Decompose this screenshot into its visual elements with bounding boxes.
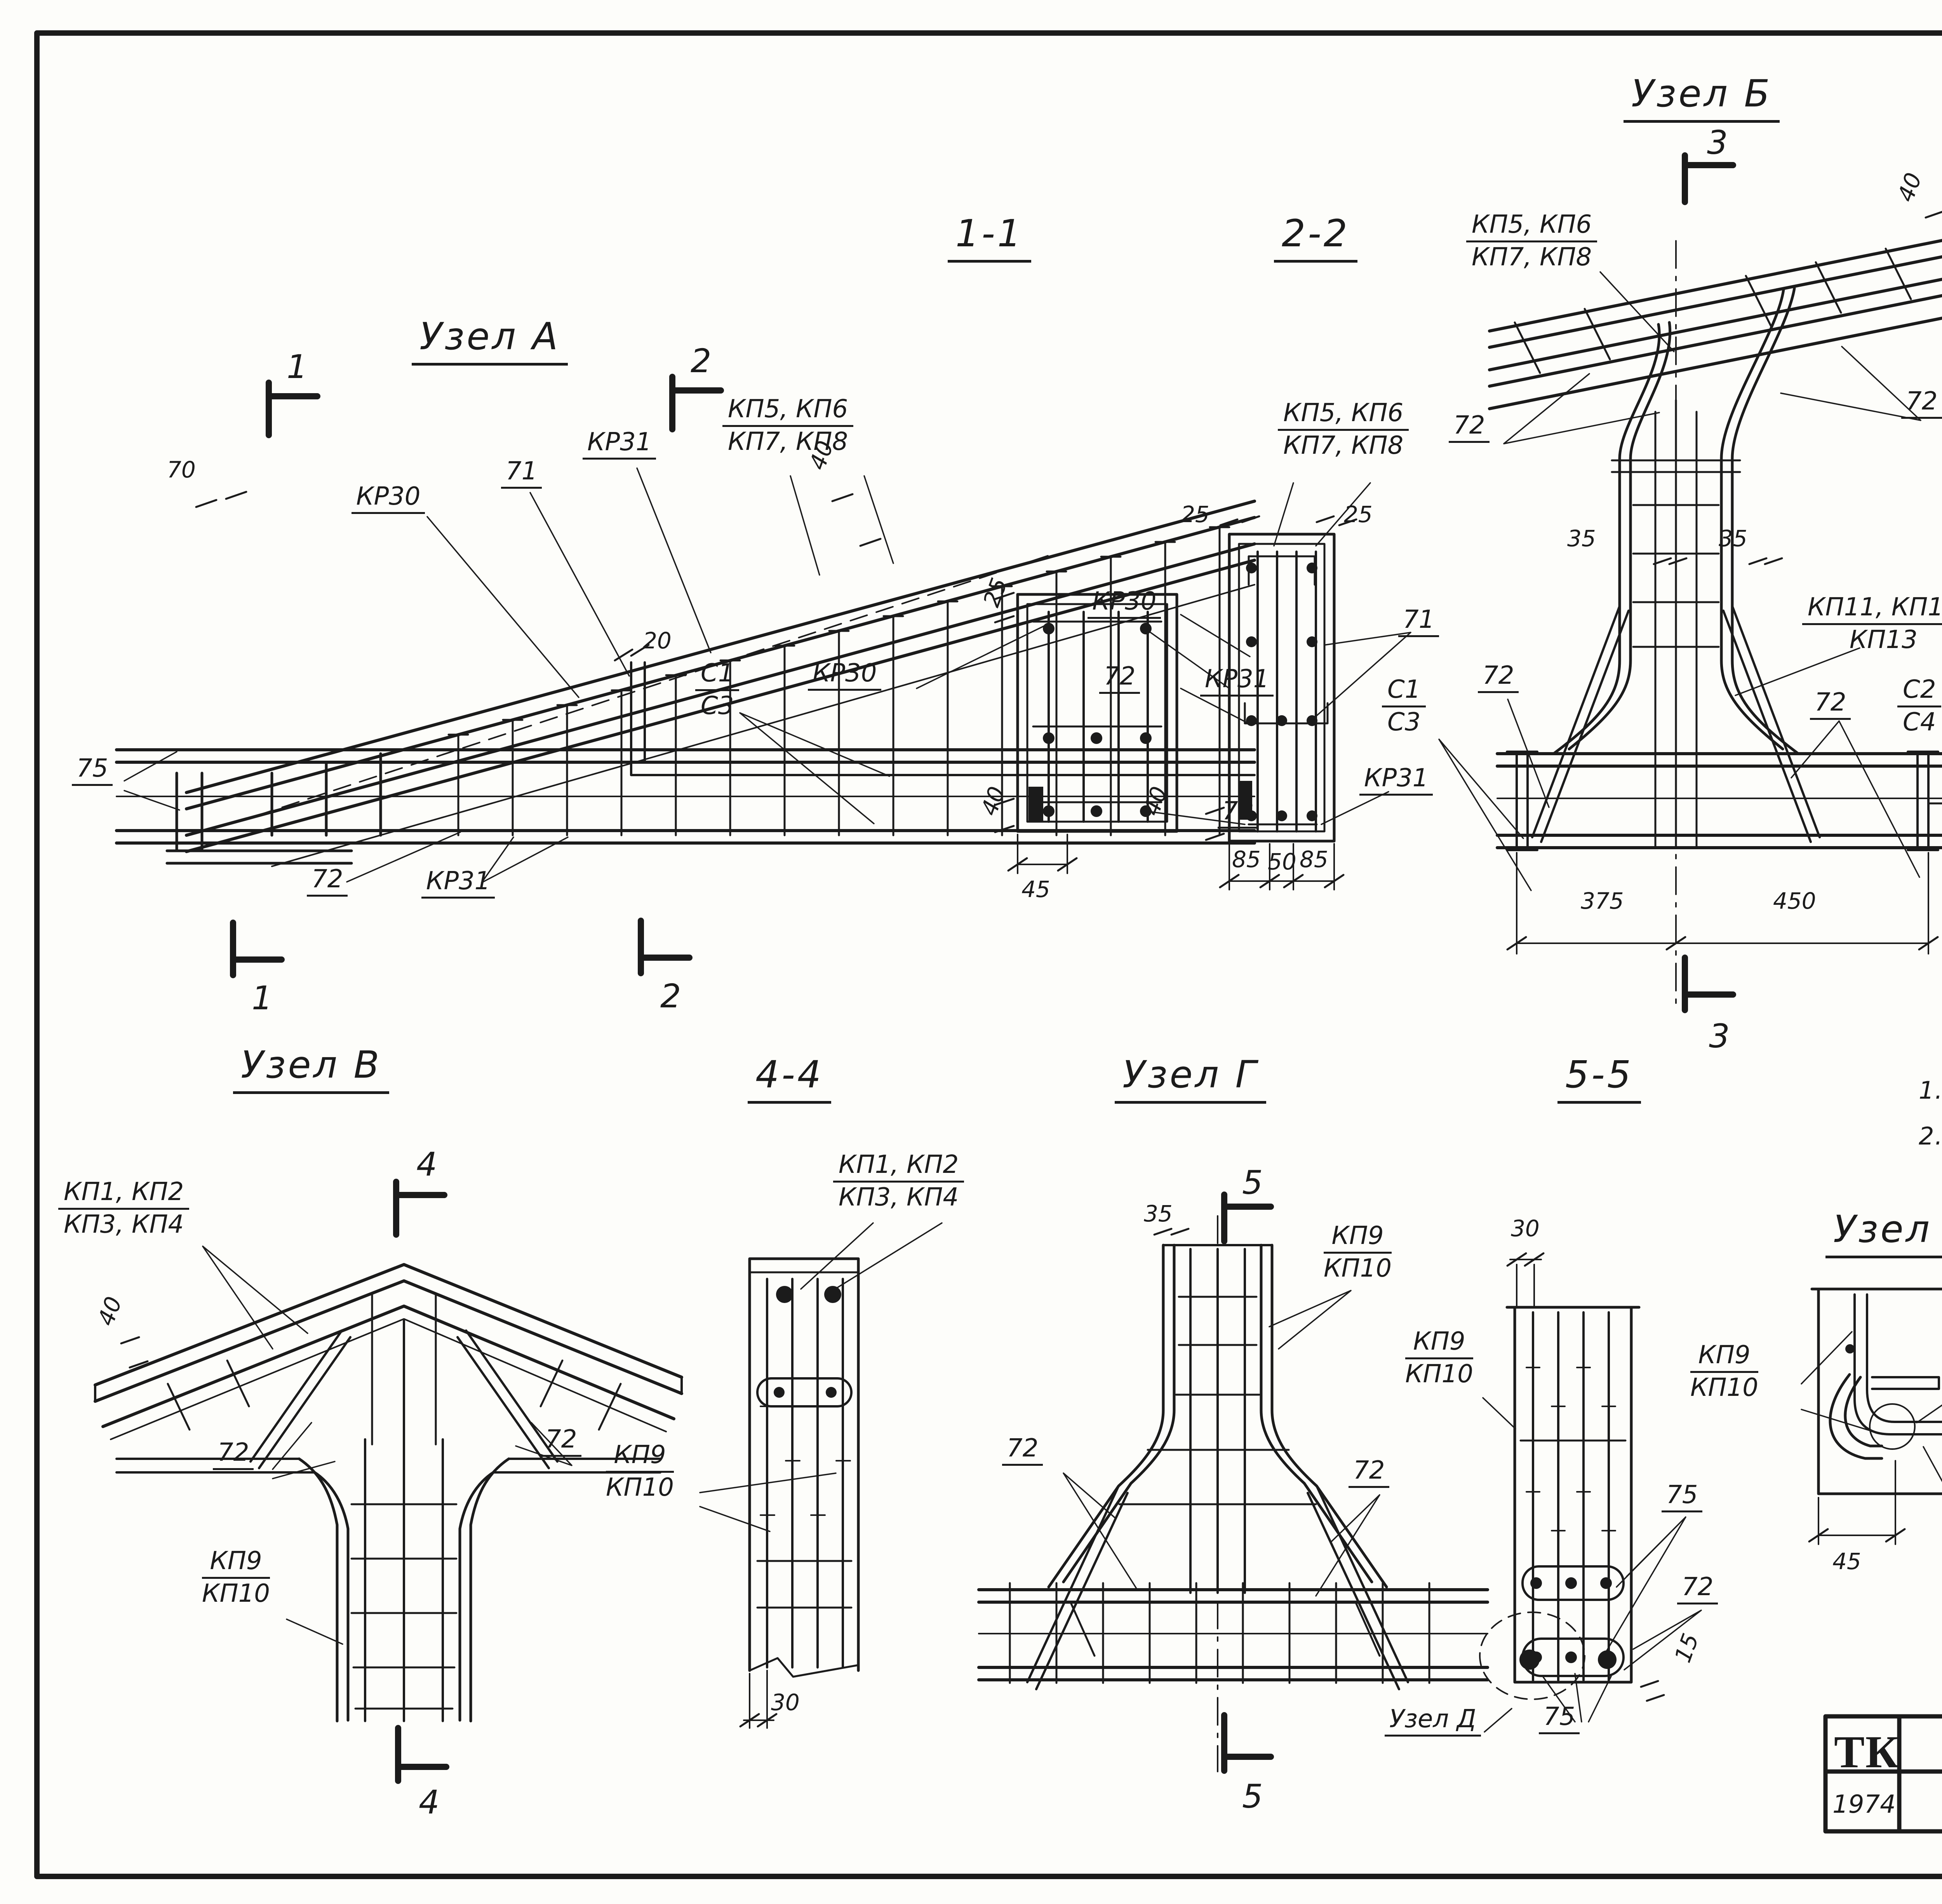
drawing-linework: [0, 0, 1942, 1904]
uzel-g-callout-72-left: 72: [1002, 1435, 1043, 1466]
section-2-2-dim-85-right: 85: [1300, 846, 1328, 873]
uzel-g-callout-kp9-10: КП9 КП10: [1324, 1223, 1392, 1282]
uzel-a-callout-kr31: КР31: [583, 429, 656, 460]
section-2-2-dim-25-right: 25: [1344, 501, 1373, 528]
uzel-a-dim-70: 70: [167, 456, 196, 483]
section-2-2-callout-kp5-6: КП5, КП6: [1278, 400, 1409, 431]
uzel-b-callout-kp11-13: КП11, КП12 КП13: [1802, 594, 1942, 653]
section-4-4-callout-kp1-2: КП1, КП2: [833, 1152, 964, 1183]
uzel-b-callout-c1: С1: [1382, 677, 1426, 707]
uzel-a-callout-kp5-6: КП5, КП6: [722, 396, 853, 427]
section-5-5-callout-kp10: КП10: [1405, 1359, 1473, 1387]
uzel-a-section-mark-2-bottom: 2: [660, 977, 681, 1015]
section-1-1-callout-72: 72: [1218, 798, 1258, 829]
title-block-year: 1974: [1832, 1790, 1896, 1819]
uzel-b-callout-kp5-8: КП5, КП6 КП7, КП8: [1466, 212, 1597, 270]
section-2-2-callout-kp7-8: КП7, КП8: [1278, 431, 1409, 459]
uzel-a-callout-c1: С1: [695, 660, 739, 691]
section-2-2-dim-50: 50: [1268, 848, 1296, 875]
section-5-5-callout-75: 75: [1662, 1482, 1702, 1512]
uzel-b-callout-72-left-bottom: 72: [1478, 663, 1519, 693]
section-5-5-callout-72: 72: [1677, 1574, 1718, 1604]
section-1-1-callout-kr31: КР31: [1200, 666, 1274, 697]
uzel-a-dim-20: 20: [643, 627, 672, 654]
section-4-4-title: 4-4: [748, 1053, 831, 1104]
uzel-b-dim-35-left: 35: [1567, 525, 1596, 552]
uzel-b-callout-kp11-12: КП11, КП12: [1802, 594, 1942, 625]
uzel-b-dim-35-right: 35: [1719, 525, 1747, 552]
uzel-g-section-mark-5-bottom: 5: [1242, 1777, 1263, 1815]
section-5-5-callout-kp9-10: КП9 КП10: [1405, 1329, 1473, 1387]
uzel-b-callout-72-left-top: 72: [1449, 413, 1490, 443]
uzel-b-section-mark-3-bottom: 3: [1709, 1017, 1730, 1055]
uzel-d-callout-kp10: КП10: [1690, 1373, 1758, 1401]
uzel-b-callout-c2: С2: [1897, 677, 1941, 707]
section-2-2-title: 2-2: [1274, 212, 1357, 263]
uzel-a-section-mark-1-bottom: 1: [252, 979, 272, 1017]
uzel-g-callout-75: 75: [1539, 1704, 1580, 1734]
view-4-4-lines: [700, 1223, 942, 1728]
uzel-d-callout-kp9: КП9: [1690, 1342, 1758, 1373]
uzel-a-callout-c3: С3: [695, 691, 739, 719]
section-4-4-callout-kp3-4: КП3, КП4: [833, 1183, 964, 1211]
section-5-5-callout-kp9: КП9: [1405, 1329, 1473, 1359]
uzel-b-dim-375: 375: [1581, 888, 1624, 914]
uzel-d-callout-kp9-10: КП9 КП10: [1690, 1342, 1758, 1401]
view-uzel-d-lines: [1801, 1289, 1942, 1548]
uzel-g-callout-72-right: 72: [1349, 1458, 1389, 1488]
view-uzel-v-lines: [95, 1182, 682, 1781]
section-2-2-callout-kr30: КР30: [1088, 589, 1161, 619]
section-2-2-callout-kr31: КР31: [1359, 765, 1433, 796]
company-logo-tk: ТК: [1834, 1726, 1899, 1779]
section-5-5-title: 5-5: [1557, 1053, 1641, 1104]
uzel-a-callout-c1-c3: С1 С3: [695, 660, 739, 719]
uzel-g-title: Узел Г: [1115, 1053, 1266, 1104]
uzel-g-callout-kp9: КП9: [1324, 1223, 1392, 1254]
section-1-1-callout-kr30: КР30: [808, 660, 881, 691]
uzel-v-callout-kp1-2: КП1, КП2: [58, 1179, 189, 1210]
uzel-v-callout-kp1-4: КП1, КП2 КП3, КП4: [58, 1179, 189, 1238]
section-1-1-dim-45: 45: [1021, 876, 1050, 902]
section-4-4-dim-30: 30: [771, 1689, 800, 1716]
uzel-g-section-mark-5-top: 5: [1242, 1164, 1263, 1202]
uzel-d-reference-callout: Узел Д: [1385, 1706, 1481, 1737]
uzel-g-dim-35: 35: [1144, 1200, 1173, 1227]
uzel-b-callout-c1-c3: С1 С3: [1382, 677, 1426, 735]
section-4-4-callout-kp10: КП10: [606, 1473, 674, 1501]
section-2-2-callout-72: 72: [1099, 664, 1140, 694]
note-line-2: 2. Разбивка стержней в нижнем поясе: [1919, 1122, 1942, 1150]
uzel-b-callout-c4: С4: [1897, 707, 1941, 735]
uzel-b-callout-kp5-6: КП5, КП6: [1466, 212, 1597, 242]
section-1-1-title: 1-1: [948, 212, 1031, 263]
uzel-d-title: Узел Д: [1825, 1207, 1942, 1258]
uzel-a-callout-75: 75: [72, 756, 113, 786]
uzel-b-section-mark-3-top: 3: [1707, 124, 1728, 162]
uzel-v-callout-kp9: КП9: [202, 1548, 270, 1579]
uzel-g-callout-kp10: КП10: [1324, 1254, 1392, 1282]
uzel-a-title: Узел А: [412, 315, 568, 366]
uzel-b-callout-72-right-top: 72: [1901, 388, 1942, 419]
uzel-b-dim-450: 450: [1773, 888, 1816, 914]
uzel-v-section-mark-4-bottom: 4: [419, 1783, 439, 1821]
sheet-frame: [37, 33, 1942, 1876]
section-5-5-dim-30: 30: [1511, 1215, 1540, 1242]
section-4-4-callout-kp9-10: КП9 КП10: [606, 1442, 674, 1501]
note-line-1: 1. Арматурные чертежи даны на листах 23и…: [1919, 1076, 1942, 1104]
uzel-a-callout-72: 72: [307, 866, 348, 897]
uzel-a-callout-71: 71: [501, 458, 542, 489]
uzel-v-callout-72-right: 72: [541, 1427, 581, 1457]
section-4-4-callout-kp9: КП9: [606, 1442, 674, 1473]
uzel-a-section-mark-1-top: 1: [287, 348, 307, 386]
uzel-v-callout-kp9-10: КП9 КП10: [202, 1548, 270, 1607]
view-5-5-lines: [1480, 1253, 1701, 1701]
uzel-v-callout-kp3-4: КП3, КП4: [58, 1210, 189, 1238]
section-2-2-dim-25-left: 25: [1181, 501, 1209, 528]
uzel-b-title: Узел Б: [1624, 72, 1780, 123]
uzel-v-section-mark-4-top: 4: [416, 1145, 437, 1183]
uzel-a-callout-kr31-bottom: КР31: [421, 868, 495, 899]
section-2-2-dim-85-left: 85: [1232, 846, 1261, 873]
uzel-b-callout-kp13: КП13: [1802, 625, 1942, 653]
section-2-2-callout-71: 71: [1398, 607, 1439, 637]
uzel-b-callout-kp7-8: КП7, КП8: [1466, 242, 1597, 270]
drawing-sheet: 26 13221-01 26 1. Арматурные чертежи дан…: [0, 0, 1942, 1904]
uzel-b-callout-c3: С3: [1382, 707, 1426, 735]
section-2-2-callout-kp5-8: КП5, КП6 КП7, КП8: [1278, 400, 1409, 459]
uzel-b-callout-c2-c4: С2 С4: [1897, 677, 1941, 735]
uzel-v-callout-72-left: 72: [213, 1440, 254, 1470]
uzel-v-callout-kp10: КП10: [202, 1579, 270, 1607]
uzel-a-callout-kr30: КР30: [352, 484, 425, 514]
section-4-4-callout-kp1-4: КП1, КП2 КП3, КП4: [833, 1152, 964, 1211]
uzel-d-dim-45: 45: [1832, 1548, 1861, 1575]
uzel-v-title: Узел В: [233, 1043, 389, 1094]
view-uzel-b-lines: [1439, 155, 1942, 1010]
uzel-b-callout-72-right-bottom: 72: [1810, 690, 1851, 720]
uzel-a-section-mark-2-top: 2: [691, 342, 711, 380]
